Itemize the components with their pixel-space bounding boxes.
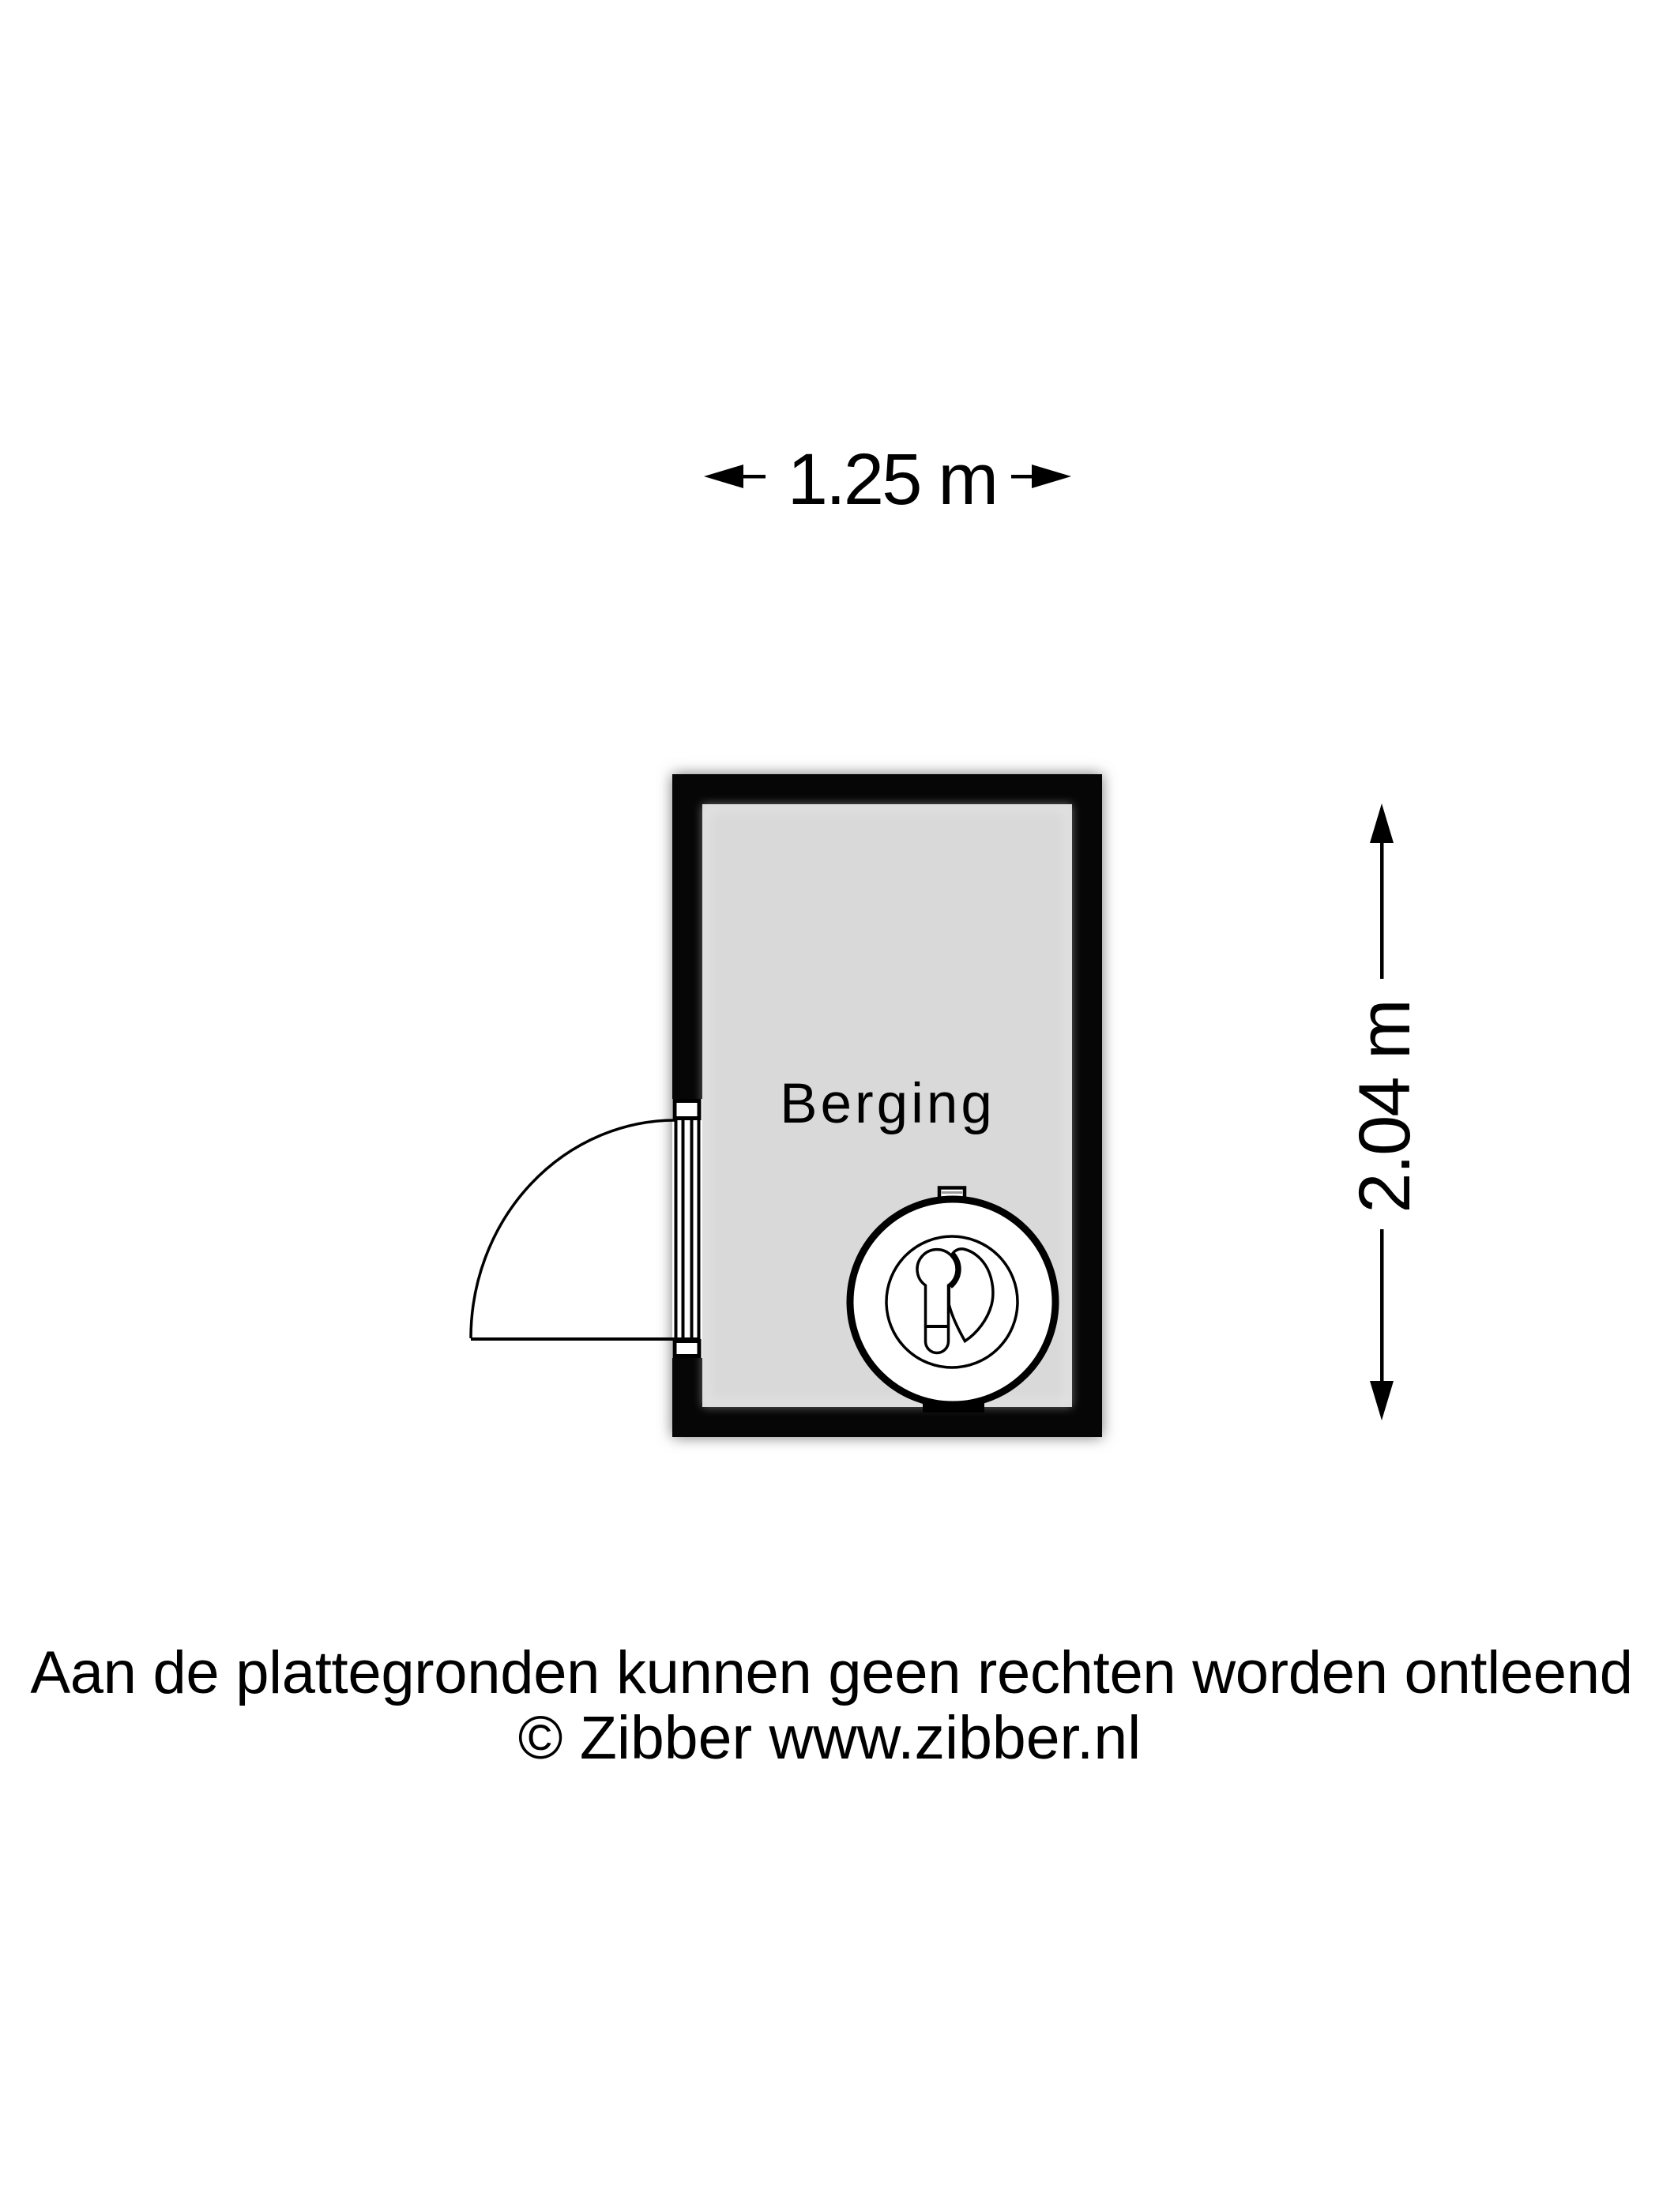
svg-text:Aan de plattegronden kunnen ge: Aan de plattegronden kunnen geen rechten… <box>30 1639 1632 1706</box>
svg-text:© Zibber www.zibber.nl: © Zibber www.zibber.nl <box>518 1704 1142 1772</box>
svg-text:1.25 m: 1.25 m <box>788 439 996 520</box>
svg-text:2.04 m: 2.04 m <box>1345 1000 1425 1213</box>
svg-text:Berging: Berging <box>780 1073 995 1135</box>
